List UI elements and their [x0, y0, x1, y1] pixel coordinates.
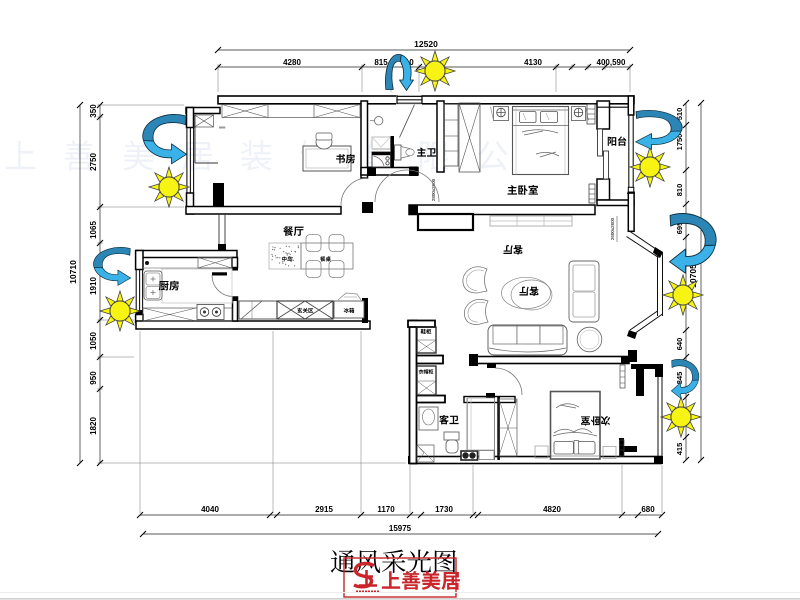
svg-text:2750: 2750 [89, 153, 98, 171]
svg-text:10710: 10710 [68, 260, 78, 284]
svg-text:950: 950 [89, 371, 98, 385]
svg-text:15975: 15975 [389, 524, 412, 533]
svg-text:810: 810 [675, 184, 684, 197]
svg-text:350: 350 [89, 104, 98, 118]
svg-text:1065: 1065 [89, 221, 98, 239]
svg-text:12520: 12520 [414, 39, 438, 49]
svg-text:845: 845 [675, 372, 684, 385]
svg-text:640: 640 [675, 338, 684, 351]
svg-text:1050: 1050 [89, 332, 98, 350]
svg-text:2600x2600: 2600x2600 [610, 217, 615, 240]
svg-text:415: 415 [675, 443, 684, 456]
svg-text:1910: 1910 [89, 277, 98, 295]
svg-text:1820: 1820 [89, 417, 98, 435]
